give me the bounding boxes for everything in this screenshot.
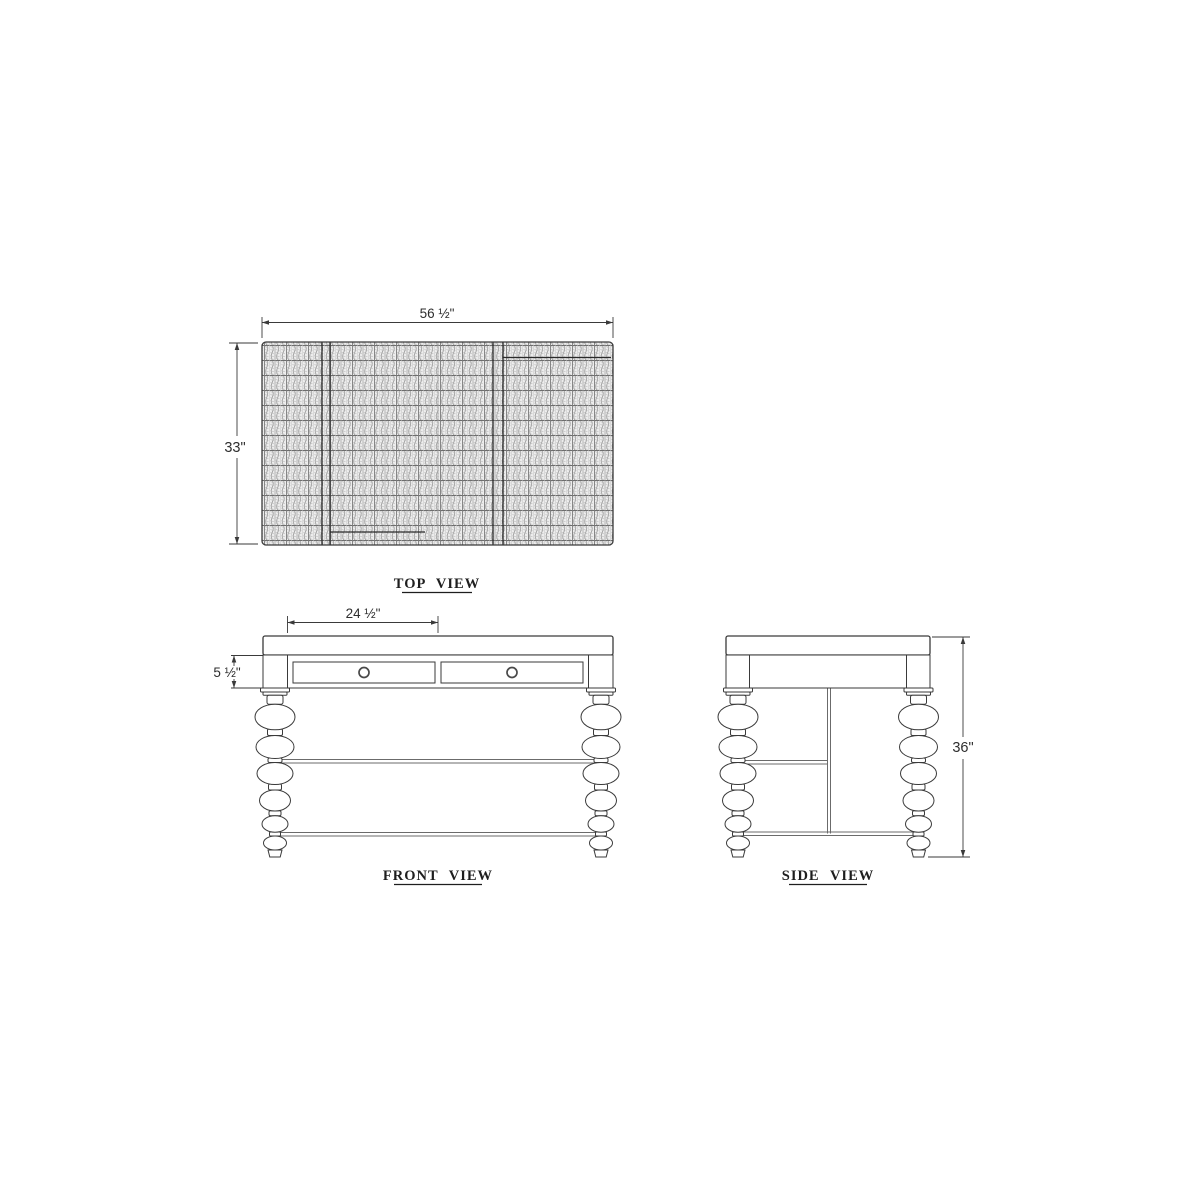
side-view-title: SIDE VIEW bbox=[782, 868, 875, 884]
side-apron bbox=[726, 655, 930, 688]
dimension-overall-height-label: 36" bbox=[952, 740, 973, 756]
technical-drawing: 56 ½" 33" TOP VIEW 24 ½ bbox=[0, 0, 1200, 1200]
top-view: 56 ½" 33" TOP VIEW bbox=[224, 306, 613, 593]
front-shelf-rails bbox=[275, 760, 601, 837]
top-view-surface bbox=[262, 342, 613, 545]
front-view-title: FRONT VIEW bbox=[383, 868, 493, 884]
dimension-drawer-width-label: 24 ½" bbox=[346, 606, 381, 621]
drawing-sheet: 56 ½" 33" TOP VIEW 24 ½ bbox=[0, 0, 1200, 1200]
side-view: 36" SIDE VIEW bbox=[718, 636, 974, 885]
dimension-top-depth-label: 33" bbox=[224, 440, 245, 456]
side-shelves bbox=[738, 688, 919, 836]
top-view-title: TOP VIEW bbox=[394, 576, 480, 592]
turned-leg-front-left bbox=[255, 688, 295, 857]
dimension-apron-height-label: 5 ½" bbox=[213, 665, 241, 680]
drawer-knob-right bbox=[507, 668, 517, 678]
turned-leg-front-right bbox=[581, 688, 621, 857]
front-tabletop bbox=[263, 636, 613, 655]
front-view: 24 ½" 5 ½" FRONT VIEW bbox=[213, 606, 621, 885]
side-tabletop bbox=[726, 636, 930, 655]
dimension-top-width-label: 56 ½" bbox=[420, 306, 455, 321]
drawer-knob-left bbox=[359, 668, 369, 678]
